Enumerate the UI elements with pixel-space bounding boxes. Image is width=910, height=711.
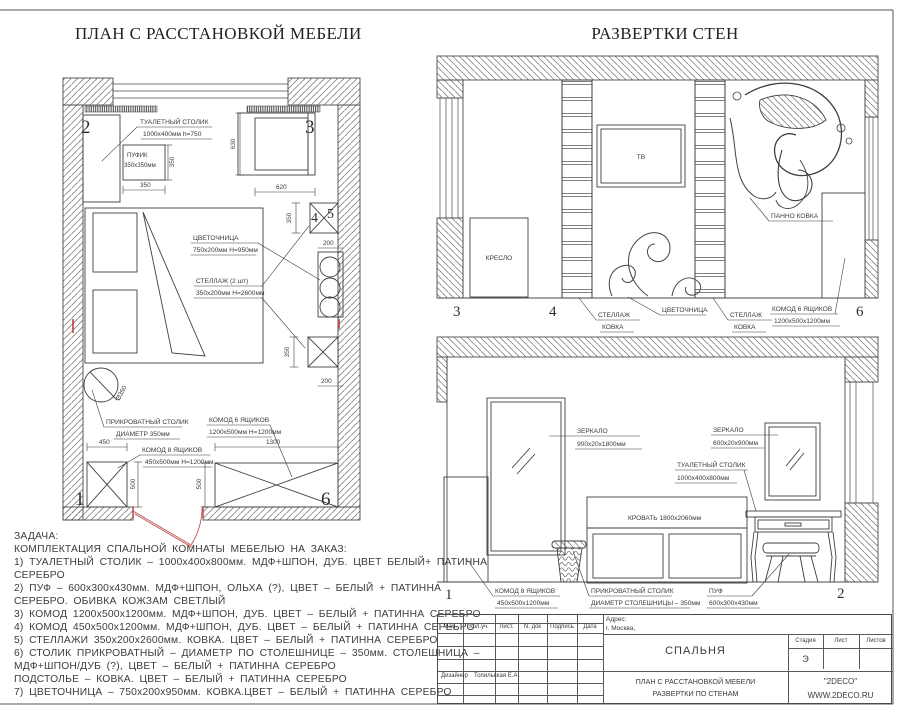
elev-pouf xyxy=(763,543,819,582)
callout-pouf-name: ПУФИК xyxy=(127,152,148,159)
plan-window xyxy=(113,84,288,98)
task-line: 1) ТУАЛЕТНЫЙ СТОЛИК – 1000x400x800мм. МД… xyxy=(14,556,444,569)
wall-marker-5: 5 xyxy=(327,207,334,222)
plan-bedside-table xyxy=(84,368,118,402)
elev-bottom-window xyxy=(850,382,873,503)
wall-marker-3: 3 xyxy=(305,117,315,138)
elev-tv-label: ТВ xyxy=(637,154,646,161)
task-line: СЕРЕБРО. ОБИВКА КОЖЗАМ СВЕТЛЫЙ xyxy=(14,595,444,608)
task-line: 7) ЦВЕТОЧНИЦА – 750x200x950мм. КОВКА.ЦВЕ… xyxy=(14,686,444,699)
task-line: ПОДСТОЛЬЕ – КОВКА. ЦВЕТ – БЕЛЫЙ + ПАТИНН… xyxy=(14,673,444,686)
elev-mirror-large xyxy=(487,398,565,555)
tb-address-value: г. Москва, xyxy=(606,625,666,632)
pillow xyxy=(93,213,137,272)
callout-chest6-name: КОМОД 6 ЯЩИКОВ xyxy=(209,417,270,424)
tb-site: WWW.2DECO.RU xyxy=(788,691,893,700)
tb-stage-label: Стадия xyxy=(788,638,823,644)
task-line: СЕРЕБРО xyxy=(14,569,444,582)
dim-gap: 200 xyxy=(321,378,332,385)
tb-doc-title-1: ПЛАН С РАССТАНОВКОЙ МЕБЕЛИ xyxy=(603,677,788,686)
dressing-elev-label2: 1000x400x800мм xyxy=(677,475,730,482)
elev-bedside-table xyxy=(552,541,586,582)
tb-col-list: Лист. xyxy=(495,624,518,630)
callout-shelf-name: СТЕЛЛАЖ (2 шт) xyxy=(196,278,248,285)
mirror-small-label1: ЗЕРКАЛО xyxy=(713,427,744,434)
elev-shelf1-label2: КОВКА xyxy=(602,324,624,331)
tb-doc-title-2: РАЗВЕРТКИ ПО СТЕНАМ xyxy=(603,689,788,698)
callout-shelf-dims: 350x200мм H=2600мм xyxy=(196,290,265,297)
elev-armchair-label: КРЕСЛО xyxy=(486,255,513,262)
task-line: 5) СТЕЛЛАЖИ 350x200x2600мм. КОВКА. ЦВЕТ … xyxy=(14,634,444,647)
dim-armchair-height: 630 xyxy=(230,138,237,149)
dim-pouf-width: 350 xyxy=(140,182,151,189)
pillow xyxy=(93,290,137,353)
tb-sheet-label: Лист xyxy=(823,638,859,644)
bedside-elev-label1: ПРИКРОВАТНЫЙ СТОЛИК xyxy=(591,586,674,595)
elev-shelf2-label2: КОВКА xyxy=(734,324,756,331)
elev-marker-4: 4 xyxy=(549,304,557,320)
bed-label: КРОВАТЬ 1800x2060мм xyxy=(628,515,702,522)
elev-shelf-1 xyxy=(562,80,592,298)
wall-marker-4: 4 xyxy=(311,211,318,226)
title-block: Изм. Кол.уч. Лист. N. док Подпись Дата А… xyxy=(437,614,892,704)
elev-bed xyxy=(587,497,747,583)
elev-mirror-small xyxy=(765,423,820,500)
plan-dimensions xyxy=(87,113,343,507)
elev-planter-label: ЦВЕТОЧНИЦА xyxy=(662,307,708,314)
elev-marker-6: 6 xyxy=(856,304,864,320)
dim-armchair-width: 620 xyxy=(276,184,287,191)
elev-marker-3: 3 xyxy=(453,304,461,320)
plan-bed xyxy=(85,208,263,363)
tb-col-izm: Изм. xyxy=(438,624,463,630)
tb-col-ndok: N. док xyxy=(518,624,547,630)
drawing-sheet: ПЛАН С РАССТАНОВКОЙ МЕБЕЛИ РАЗВЕРТКИ СТЕ… xyxy=(0,0,910,711)
elev-shelf1-label1: СТЕЛЛАЖ xyxy=(598,312,630,319)
elev-panel-label: ПАННО КОВКА xyxy=(771,213,819,220)
plan-armchair xyxy=(238,113,315,175)
tb-sheets-label: Листов xyxy=(859,638,893,644)
mirror-large-label1: ЗЕРКАЛО xyxy=(577,428,608,435)
task-line: МДФ+ШПОН/ДУБ (?), ЦВЕТ – БЕЛЫЙ + ПАТИННА… xyxy=(14,660,444,673)
dim-planter-width: 200 xyxy=(323,240,334,247)
wall-marker-1: 1 xyxy=(75,489,85,510)
task-line: 4) КОМОД 450x500x1200мм. МДФ+ШПОН, ДУБ. … xyxy=(14,621,444,634)
plan-shelf-2 xyxy=(308,337,338,367)
elev-planter-scroll xyxy=(609,233,700,296)
tb-col-koluch: Кол.уч. xyxy=(463,624,495,630)
bedside-elev-label2: ДИАМЕТР СТОЛЕШНИЦЫ – 350мм xyxy=(591,600,701,607)
dim-chest8-depth: 500 xyxy=(130,478,137,489)
dim-shelf1: 350 xyxy=(286,212,293,223)
elev-marker-1: 1 xyxy=(445,587,453,603)
elev-panel-art xyxy=(730,83,852,208)
dim-shelf2: 350 xyxy=(284,346,291,357)
callout-bedside-name: ПРИКРОВАТНЫЙ СТОЛИК xyxy=(106,417,189,426)
tb-stage-value: Э xyxy=(788,654,823,664)
plan-chest8 xyxy=(87,462,127,507)
pouf-elev-label1: ПУФ xyxy=(709,588,723,595)
elev-marker-2: 2 xyxy=(837,586,845,602)
callout-chest8-name: КОМОД 8 ЯЩИКОВ xyxy=(142,447,203,454)
task-line: 2) ПУФ – 600x300x430мм. МДФ+ШПОН, ОЛЬХА … xyxy=(14,582,444,595)
callout-bedside-dims: ДИАМЕТР 350мм xyxy=(116,431,170,438)
chest8-elev-label2: 450x500x1200мм xyxy=(497,600,550,607)
tb-designer-name: Топильская Е.А xyxy=(474,673,544,679)
callout-chest8-dims: 450x500мм H=1200мм xyxy=(145,459,214,466)
callout-dressing-name: ТУАЛЕТНЫЙ СТОЛИК xyxy=(140,117,209,126)
plan-chest6 xyxy=(215,463,338,507)
tb-designer-label: Дизайнер xyxy=(441,673,471,679)
tb-project-name: СПАЛЬНЯ xyxy=(603,645,788,657)
plan-walls xyxy=(63,78,360,520)
callout-pouf-dims: 350x350мм xyxy=(124,162,156,169)
callout-planter-name: ЦВЕТОЧНИЦА xyxy=(193,235,239,242)
mirror-small-label2: 600x20x900мм xyxy=(713,440,758,447)
dim-pouf-depth: 350 xyxy=(169,156,176,167)
dim-chest8-width: 450 xyxy=(99,439,110,446)
elev-chest6-label2: 1200x500x1200мм xyxy=(774,318,830,325)
callout-chest6-dims: 1200x500мм H=1200мм xyxy=(209,429,282,436)
elevation-bottom: ЗЕРКАЛО 900x20x1800мм ЗЕРКАЛО 600x20x900… xyxy=(437,337,878,608)
task-list: ЗАДАЧА: КОМПЛЕКТАЦИЯ СПАЛЬНОЙ КОМНАТЫ МЕ… xyxy=(14,530,444,699)
floor-plan: 350 350 630 620 350 200 350 200 450 500 … xyxy=(63,78,360,548)
curtain-right xyxy=(247,106,320,112)
elev-chest6 xyxy=(822,193,865,298)
dim-bedside-diameter: Ø350 xyxy=(115,384,129,401)
elev-shelf-2 xyxy=(695,80,725,298)
callout-dressing-dims: 1000x400мм h=750 xyxy=(143,131,202,138)
wall-marker-2: 2 xyxy=(81,117,91,138)
tb-address-label: Адрес: xyxy=(606,616,666,623)
tb-col-date: Дата xyxy=(577,624,603,630)
elevation-top: КРЕСЛО ТВ ПАННО КОВКА СТЕЛЛАЖ КОВКА ЦВЕТ… xyxy=(437,56,878,332)
wall-marker-6: 6 xyxy=(321,489,331,510)
elev-shelf2-label1: СТЕЛЛАЖ xyxy=(730,312,762,319)
elev-dressing-table xyxy=(746,511,841,582)
task-line: 3) КОМОД 1200x500x1200мм. МДФ+ШПОН, ДУБ.… xyxy=(14,608,444,621)
dim-chest6-depth: 500 xyxy=(196,478,203,489)
task-line: КОМПЛЕКТАЦИЯ СПАЛЬНОЙ КОМНАТЫ МЕБЕЛЬЮ НА… xyxy=(14,543,444,556)
dressing-elev-label1: ТУАЛЕТНЫЙ СТОЛИК xyxy=(677,460,746,469)
elev-chest6-label1: КОМОД 6 ЯЩИКОВ xyxy=(772,306,833,313)
tb-brand: "2DECO" xyxy=(788,677,893,686)
chest8-elev-label1: КОМОД 8 ЯЩИКОВ xyxy=(495,588,556,595)
task-line: ЗАДАЧА: xyxy=(14,530,444,543)
task-line: 6) СТОЛИК ПРИКРОВАТНЫЙ – ДИАМЕТР ПО СТОЛ… xyxy=(14,647,444,660)
callout-planter-dims: 750x200мм H=950мм xyxy=(193,247,258,254)
pouf-elev-label2: 600x300x430мм xyxy=(709,600,758,607)
tb-col-podpis: Подпись xyxy=(547,624,577,630)
mirror-large-label2: 900x20x1800мм xyxy=(577,441,626,448)
curtain-left xyxy=(85,106,157,112)
